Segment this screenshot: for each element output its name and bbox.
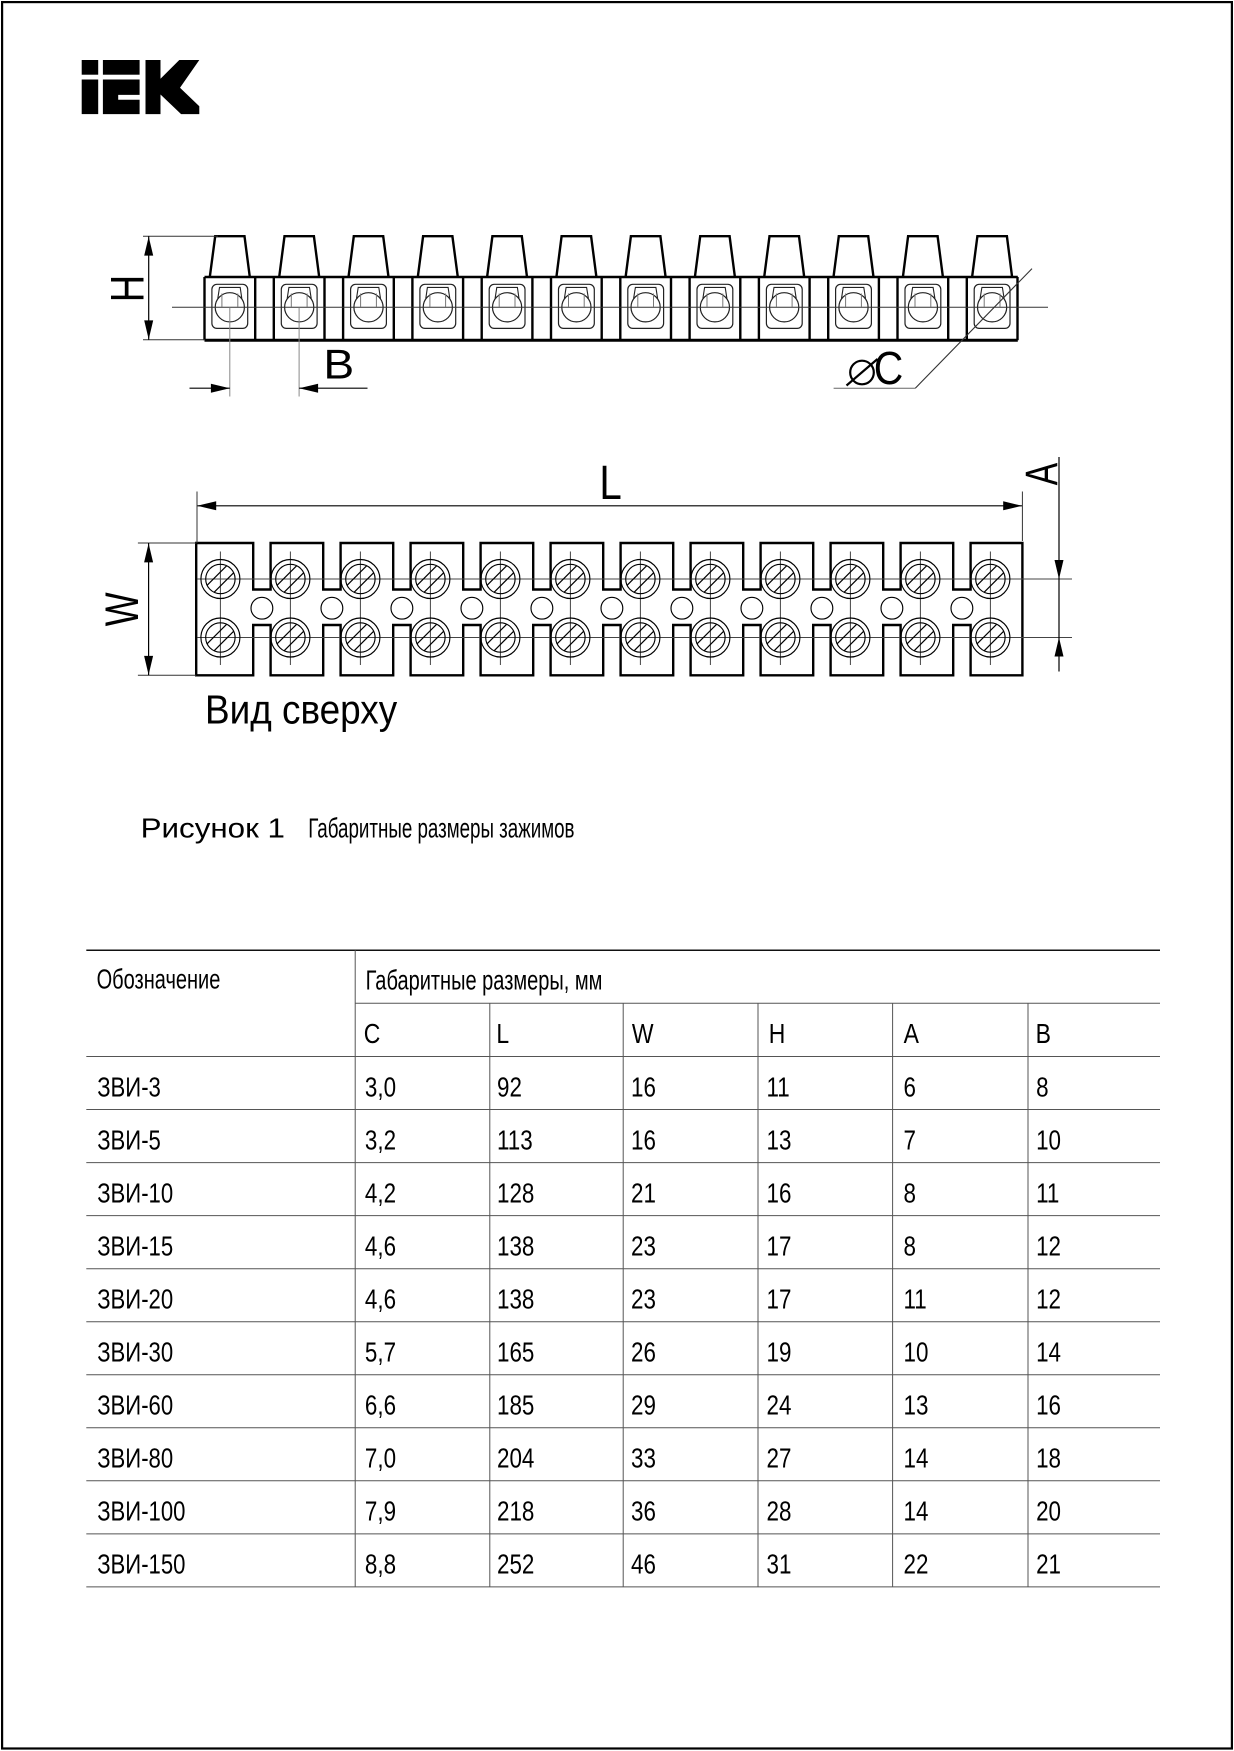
svg-text:Вид сверху: Вид сверху xyxy=(205,688,398,733)
svg-text:8: 8 xyxy=(904,1231,916,1262)
svg-text:14: 14 xyxy=(904,1496,929,1527)
svg-text:ЗВИ-100: ЗВИ-100 xyxy=(97,1496,185,1527)
svg-text:H: H xyxy=(102,275,155,302)
svg-text:128: 128 xyxy=(497,1178,534,1209)
svg-text:17: 17 xyxy=(767,1284,792,1315)
svg-text:7,0: 7,0 xyxy=(365,1443,396,1474)
svg-text:20: 20 xyxy=(1036,1496,1061,1527)
svg-text:W: W xyxy=(632,1019,654,1050)
svg-text:C: C xyxy=(874,342,904,394)
svg-text:14: 14 xyxy=(1036,1337,1061,1368)
svg-text:17: 17 xyxy=(767,1231,792,1262)
svg-text:H: H xyxy=(769,1019,786,1050)
svg-text:8: 8 xyxy=(1036,1072,1048,1103)
svg-text:W: W xyxy=(95,592,148,626)
svg-text:26: 26 xyxy=(631,1337,656,1368)
svg-text:7,9: 7,9 xyxy=(365,1496,396,1527)
svg-text:92: 92 xyxy=(497,1072,522,1103)
svg-text:ЗВИ-80: ЗВИ-80 xyxy=(97,1443,173,1474)
svg-text:10: 10 xyxy=(1036,1125,1061,1156)
svg-text:12: 12 xyxy=(1036,1231,1061,1262)
svg-text:8,8: 8,8 xyxy=(365,1549,396,1580)
svg-text:138: 138 xyxy=(497,1231,534,1262)
svg-text:46: 46 xyxy=(631,1549,656,1580)
svg-text:Габаритные размеры, мм: Габаритные размеры, мм xyxy=(366,965,603,996)
svg-text:33: 33 xyxy=(631,1443,656,1474)
svg-text:14: 14 xyxy=(904,1443,929,1474)
svg-text:16: 16 xyxy=(631,1125,656,1156)
svg-text:Обозначение: Обозначение xyxy=(97,964,221,995)
svg-text:A: A xyxy=(1017,462,1067,485)
svg-text:3,0: 3,0 xyxy=(365,1072,396,1103)
svg-text:19: 19 xyxy=(767,1337,792,1368)
svg-text:113: 113 xyxy=(497,1125,533,1156)
svg-text:4,2: 4,2 xyxy=(365,1178,396,1209)
svg-text:29: 29 xyxy=(631,1390,656,1421)
svg-text:4,6: 4,6 xyxy=(365,1231,396,1262)
svg-text:ЗВИ-150: ЗВИ-150 xyxy=(97,1549,185,1580)
svg-text:10: 10 xyxy=(904,1337,929,1368)
svg-text:138: 138 xyxy=(497,1284,534,1315)
svg-text:8: 8 xyxy=(904,1178,916,1209)
svg-text:11: 11 xyxy=(767,1072,790,1103)
svg-text:18: 18 xyxy=(1036,1443,1061,1474)
svg-text:ЗВИ-60: ЗВИ-60 xyxy=(97,1390,173,1421)
svg-text:C: C xyxy=(364,1019,381,1050)
svg-text:13: 13 xyxy=(767,1125,792,1156)
svg-text:16: 16 xyxy=(631,1072,656,1103)
svg-text:11: 11 xyxy=(904,1284,927,1315)
svg-text:ЗВИ-30: ЗВИ-30 xyxy=(97,1337,173,1368)
svg-text:23: 23 xyxy=(631,1231,656,1262)
svg-text:185: 185 xyxy=(497,1390,534,1421)
svg-text:6: 6 xyxy=(904,1072,916,1103)
svg-text:28: 28 xyxy=(767,1496,792,1527)
svg-text:21: 21 xyxy=(1036,1549,1061,1580)
svg-text:204: 204 xyxy=(497,1443,534,1474)
svg-text:22: 22 xyxy=(904,1549,929,1580)
svg-text:6,6: 6,6 xyxy=(365,1390,396,1421)
svg-text:L: L xyxy=(599,457,621,510)
svg-text:16: 16 xyxy=(767,1178,792,1209)
svg-text:Габаритные размеры зажимов: Габаритные размеры зажимов xyxy=(308,813,574,845)
svg-text:11: 11 xyxy=(1036,1178,1059,1209)
svg-text:ЗВИ-15: ЗВИ-15 xyxy=(97,1231,173,1262)
svg-text:218: 218 xyxy=(497,1496,534,1527)
svg-text:36: 36 xyxy=(631,1496,656,1527)
svg-text:ЗВИ-3: ЗВИ-3 xyxy=(97,1072,161,1103)
svg-text:B: B xyxy=(1036,1019,1051,1050)
svg-text:23: 23 xyxy=(631,1284,656,1315)
svg-text:4,6: 4,6 xyxy=(365,1284,396,1315)
svg-text:L: L xyxy=(496,1019,509,1050)
svg-text:7: 7 xyxy=(904,1125,916,1156)
svg-text:31: 31 xyxy=(767,1549,792,1580)
svg-text:5,7: 5,7 xyxy=(365,1337,396,1368)
svg-text:ЗВИ-5: ЗВИ-5 xyxy=(97,1125,161,1156)
svg-text:16: 16 xyxy=(1036,1390,1061,1421)
svg-text:24: 24 xyxy=(767,1390,792,1421)
svg-text:252: 252 xyxy=(497,1549,534,1580)
svg-text:ЗВИ-10: ЗВИ-10 xyxy=(97,1178,173,1209)
svg-text:12: 12 xyxy=(1036,1284,1061,1315)
svg-text:3,2: 3,2 xyxy=(365,1125,396,1156)
svg-text:21: 21 xyxy=(631,1178,656,1209)
svg-text:Рисунок 1: Рисунок 1 xyxy=(141,813,285,844)
svg-text:165: 165 xyxy=(497,1337,534,1368)
svg-text:B: B xyxy=(323,341,354,388)
svg-text:27: 27 xyxy=(767,1443,792,1474)
svg-text:13: 13 xyxy=(904,1390,929,1421)
svg-text:A: A xyxy=(904,1019,920,1050)
svg-text:ЗВИ-20: ЗВИ-20 xyxy=(97,1284,173,1315)
